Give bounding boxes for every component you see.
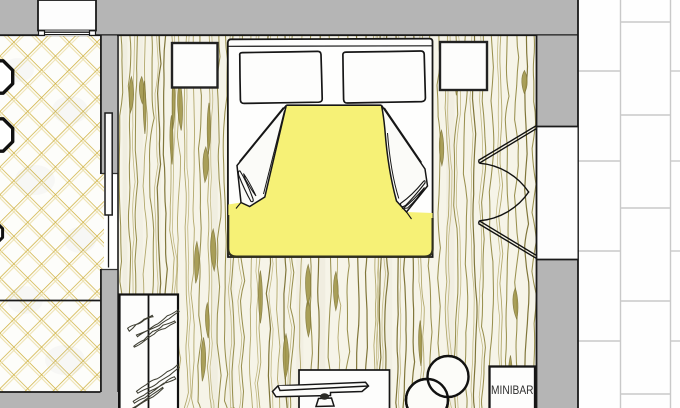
svg-text:MINIBAR: MINIBAR bbox=[491, 383, 534, 397]
